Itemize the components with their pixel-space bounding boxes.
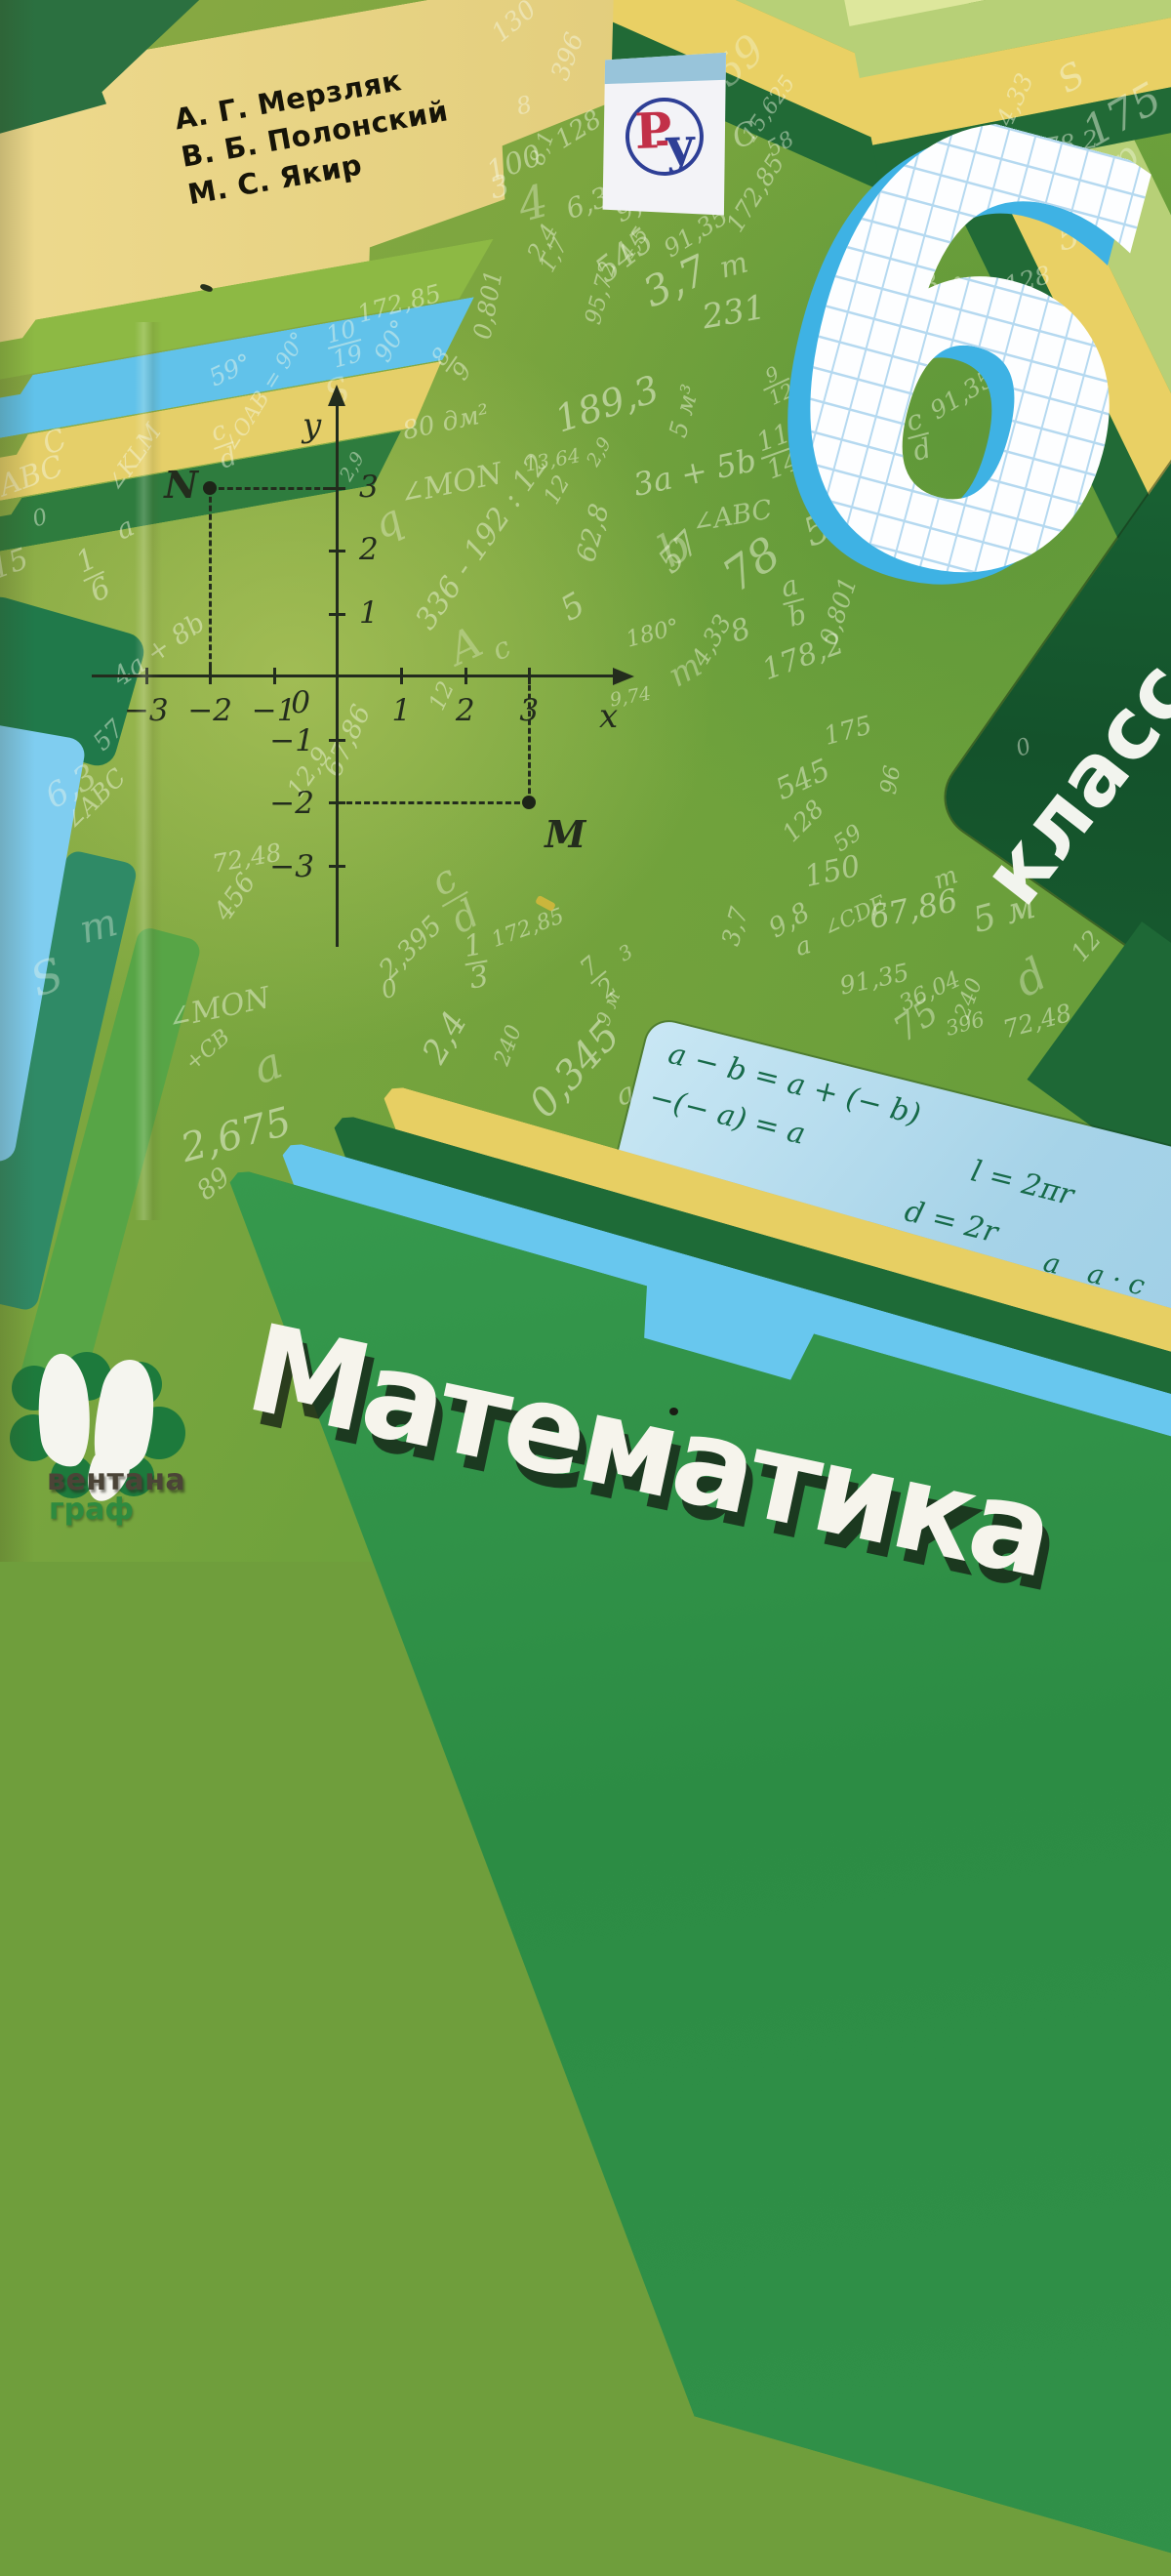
y-axis-arrow — [328, 385, 345, 406]
y-tick-label: 2 — [359, 532, 379, 567]
x-tick-label: −2 — [187, 693, 232, 728]
y-tick-label: 3 — [359, 470, 379, 505]
y-axis-label: y — [303, 406, 321, 445]
scribble: S — [23, 947, 70, 1007]
publisher-name-line2: граф — [49, 1492, 134, 1527]
scribble: a — [246, 1036, 289, 1094]
y-tick-label: −2 — [269, 786, 314, 821]
y-tick-label: −3 — [269, 849, 314, 884]
cover-speck — [669, 1408, 678, 1415]
ru-publisher-badge: Р у — [597, 53, 732, 224]
x-tick — [400, 668, 403, 684]
scribble: 5 м³ — [664, 382, 705, 440]
scribble: 5 м — [969, 886, 1040, 941]
scribble: 0 — [30, 505, 51, 533]
scribble: 150 — [801, 849, 863, 894]
scribble: 128 — [550, 104, 607, 155]
scribble: 2,4 — [415, 1005, 475, 1071]
coordinate-plane: xy0−3−2−1123321−1−2−3NM — [86, 388, 632, 955]
scribble: 15 — [0, 542, 33, 587]
point-label-N: N — [164, 463, 198, 507]
dashed-line-h — [210, 487, 338, 490]
y-tick-label: 1 — [359, 595, 379, 631]
publisher-logo: вентана граф — [8, 1350, 215, 1537]
scribble: a — [792, 930, 814, 961]
x-axis — [92, 675, 619, 677]
dashed-line-h — [338, 801, 529, 804]
scribble: 2,675 — [177, 1099, 297, 1171]
scribble: 172,85 — [721, 149, 790, 237]
x-tick — [145, 668, 148, 684]
y-tick — [329, 550, 345, 552]
x-tick-label: −3 — [124, 693, 169, 728]
scribble: 3,7 — [716, 904, 753, 949]
x-tick-label: 1 — [392, 693, 412, 728]
y-tick — [329, 613, 345, 616]
point-M — [522, 796, 536, 809]
scribble: 59° — [205, 348, 256, 391]
scribble: 9 м — [591, 988, 626, 1029]
scribble: 12 — [1066, 924, 1108, 966]
y-tick — [329, 865, 345, 868]
scribble: 175 — [821, 711, 875, 752]
y-tick-label: −1 — [269, 723, 314, 758]
scribble: 89 — [426, 342, 478, 386]
ru-logo-letter-u: у — [664, 116, 697, 175]
scribble: 231 — [700, 288, 769, 338]
scribble: 396 — [545, 29, 589, 85]
dashed-line-v — [528, 676, 531, 802]
x-tick — [273, 668, 276, 684]
scribble: 96 — [876, 763, 907, 796]
formula: l = 2πr — [967, 1154, 1076, 1212]
scribble: +CB — [181, 1025, 234, 1076]
x-axis-label: x — [599, 697, 618, 736]
scribble: 95,72 — [581, 259, 622, 327]
x-tick-label: 2 — [456, 693, 475, 728]
scribble: 0,801 — [468, 267, 508, 342]
dashed-line-v — [209, 488, 212, 677]
scribble: ABC — [0, 449, 68, 504]
scribble: 0,345 — [521, 1013, 629, 1126]
scribble: 59 — [829, 820, 868, 857]
y-tick — [329, 739, 345, 742]
point-N — [203, 481, 217, 495]
scribble: 8 — [513, 90, 535, 120]
x-tick — [464, 668, 467, 684]
scribble: d — [1005, 947, 1057, 1006]
scribble: 130 — [486, 0, 542, 48]
point-label-M: M — [545, 812, 585, 856]
x-axis-arrow — [613, 668, 634, 685]
scribble: m — [716, 245, 752, 285]
scribble: 240 — [490, 1022, 527, 1069]
